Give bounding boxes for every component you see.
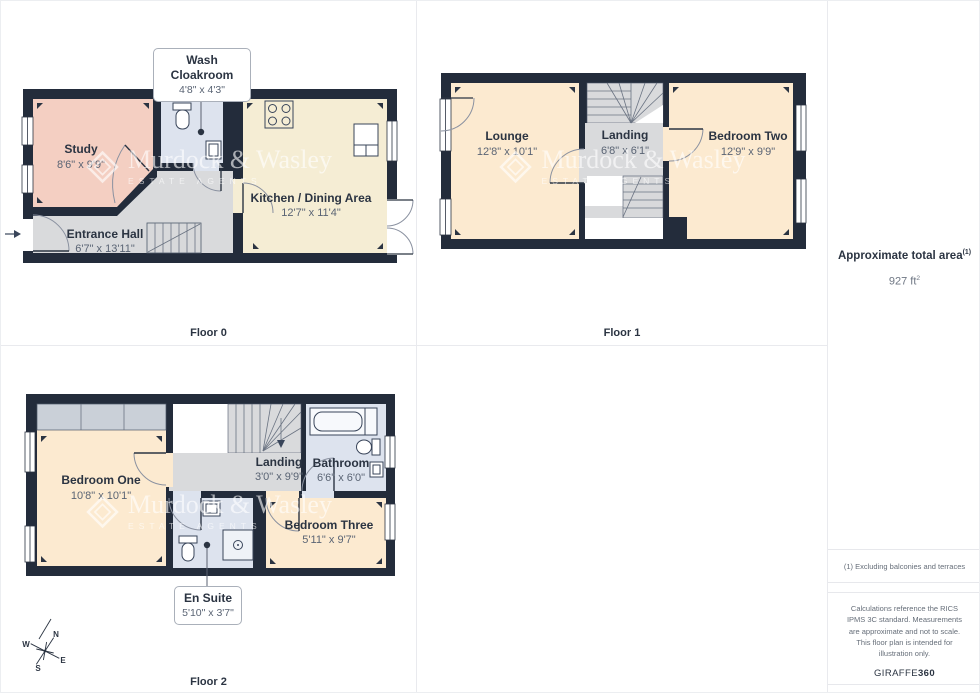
lounge-door-opening xyxy=(579,149,587,183)
landing1-label: Landing xyxy=(602,128,649,142)
disclaimer-text: Calculations reference the RICS IPMS 3C … xyxy=(841,603,968,659)
study-label: Study xyxy=(64,142,98,156)
bedroom-two-wall-notch xyxy=(669,217,687,239)
compass-east: E xyxy=(60,656,66,665)
kitchen-label: Kitchen / Dining Area xyxy=(251,191,372,205)
lounge-dims: 12'8" x 10'1" xyxy=(477,146,537,158)
sidebar: Approximate total area(1) 927 ft2 (1) Ex… xyxy=(827,1,980,693)
bedroom-one-dims: 10'8" x 10'1" xyxy=(71,490,131,502)
giraffe360-logo: GIRAFFE360 xyxy=(841,667,968,681)
lounge-label: Lounge xyxy=(485,129,529,143)
kitchen-dims: 12'7" x 11'4" xyxy=(281,207,341,219)
cloakroom-leader-dot xyxy=(198,129,204,135)
cloakroom-door-opening xyxy=(193,163,219,171)
bedroom-two-label: Bedroom Two xyxy=(708,129,787,143)
stairwell-void xyxy=(173,404,228,453)
entrance-hall-label: Entrance Hall xyxy=(67,227,144,241)
entrance-hall-dims: 6'7" x 13'11" xyxy=(75,243,135,255)
floor2-label: Floor 2 xyxy=(1,674,416,690)
giraffe360-logo-number: 360 xyxy=(918,668,935,679)
bedroom-one-door-opening xyxy=(166,453,173,487)
ensuite-leader-dot xyxy=(204,542,210,548)
bedroom-three-label: Bedroom Three xyxy=(285,518,374,532)
compass-rose: N W E S xyxy=(13,604,77,678)
panel-floor-1: Lounge 12'8" x 10'1" Landing 6'8" x 6'1"… xyxy=(417,1,827,346)
ensuite-sink-icon xyxy=(203,501,220,516)
bathroom-label: Bathroom xyxy=(313,456,370,470)
callout-en-suite-name: En Suite xyxy=(177,591,239,606)
bathroom-sink-icon xyxy=(370,462,383,477)
total-area-value: 927 ft2 xyxy=(828,275,980,288)
panel-floor-2: Bedroom One 10'8" x 10'1" Landing 3'0" x… xyxy=(1,346,417,693)
total-area-footnote-marker: (1) xyxy=(963,249,971,256)
kitchen-door-opening xyxy=(233,179,243,213)
footnote-text: (1) Excluding balconies and terraces xyxy=(844,562,965,571)
room-lounge xyxy=(451,83,579,239)
study-dims: 8'6" x 9'9" xyxy=(57,159,105,171)
entrance-arrow-icon xyxy=(5,230,21,238)
cloakroom-sink-icon xyxy=(206,141,221,159)
compass-west: W xyxy=(22,640,30,649)
compass-north: N xyxy=(53,630,59,639)
compass-south: S xyxy=(35,664,41,673)
callout-wash-cloakroom-name: Wash Cloakroom xyxy=(156,53,248,83)
landing2-label: Landing xyxy=(256,455,303,469)
landing1-dims: 6'8" x 6'1" xyxy=(601,145,649,157)
floor1-plan: Lounge 12'8" x 10'1" Landing 6'8" x 6'1"… xyxy=(417,1,827,346)
bath-icon xyxy=(310,408,377,435)
floor0-stairs xyxy=(147,223,201,253)
callout-wash-cloakroom: Wash Cloakroom 4'8" x 4'3" xyxy=(153,48,251,102)
french-door-opening xyxy=(387,199,397,255)
floorplan-page: Study 8'6" x 9'9" Entrance Hall 6'7" x 1… xyxy=(0,0,980,693)
bathroom-dims: 6'6" x 6'0" xyxy=(317,472,365,484)
floor1-stairwell xyxy=(585,83,663,239)
landing2-dims: 3'0" x 9'9" xyxy=(255,471,303,483)
floor1-label: Floor 1 xyxy=(417,325,827,341)
panel-floor-0: Study 8'6" x 9'9" Entrance Hall 6'7" x 1… xyxy=(1,1,417,346)
empty-panel xyxy=(417,346,827,693)
bathroom-toilet-icon xyxy=(357,439,381,455)
bedroom-one-label: Bedroom One xyxy=(61,473,141,487)
giraffe360-logo-text: GIRAFFE xyxy=(874,668,918,679)
floor2-stairs xyxy=(228,404,301,453)
bedroom-two-dims: 12'9" x 9'9" xyxy=(721,146,775,158)
bathroom-door-opening xyxy=(302,491,334,498)
bedroom-two-door-opening xyxy=(663,127,669,161)
bedroom-three-door-opening xyxy=(266,491,299,498)
callout-wash-cloakroom-dims: 4'8" x 4'3" xyxy=(156,83,248,97)
bedroom-three-dims: 5'11" x 9'7" xyxy=(302,534,355,546)
floor0-label: Floor 0 xyxy=(1,325,416,341)
room-bedroom-three xyxy=(266,498,386,568)
front-door-opening xyxy=(22,219,33,251)
footnote-box: (1) Excluding balconies and terraces xyxy=(828,549,980,583)
en-suite-door-opening xyxy=(173,491,201,498)
disclaimer-box: Calculations reference the RICS IPMS 3C … xyxy=(828,592,980,685)
wardrobe-icon xyxy=(37,404,166,430)
total-area-title: Approximate total area(1) xyxy=(828,249,980,262)
total-area-value-text: 927 ft xyxy=(889,276,917,288)
kitchen-appliance-icon xyxy=(354,124,378,156)
total-area-value-sup: 2 xyxy=(916,275,920,282)
total-area-title-text: Approximate total area xyxy=(838,250,963,262)
hob-icon xyxy=(265,101,293,128)
callout-en-suite-dims: 5'10" x 3'7" xyxy=(177,606,239,620)
room-bedroom-two xyxy=(669,83,793,239)
shower-icon xyxy=(223,530,253,560)
callout-en-suite: En Suite 5'10" x 3'7" xyxy=(174,586,242,625)
